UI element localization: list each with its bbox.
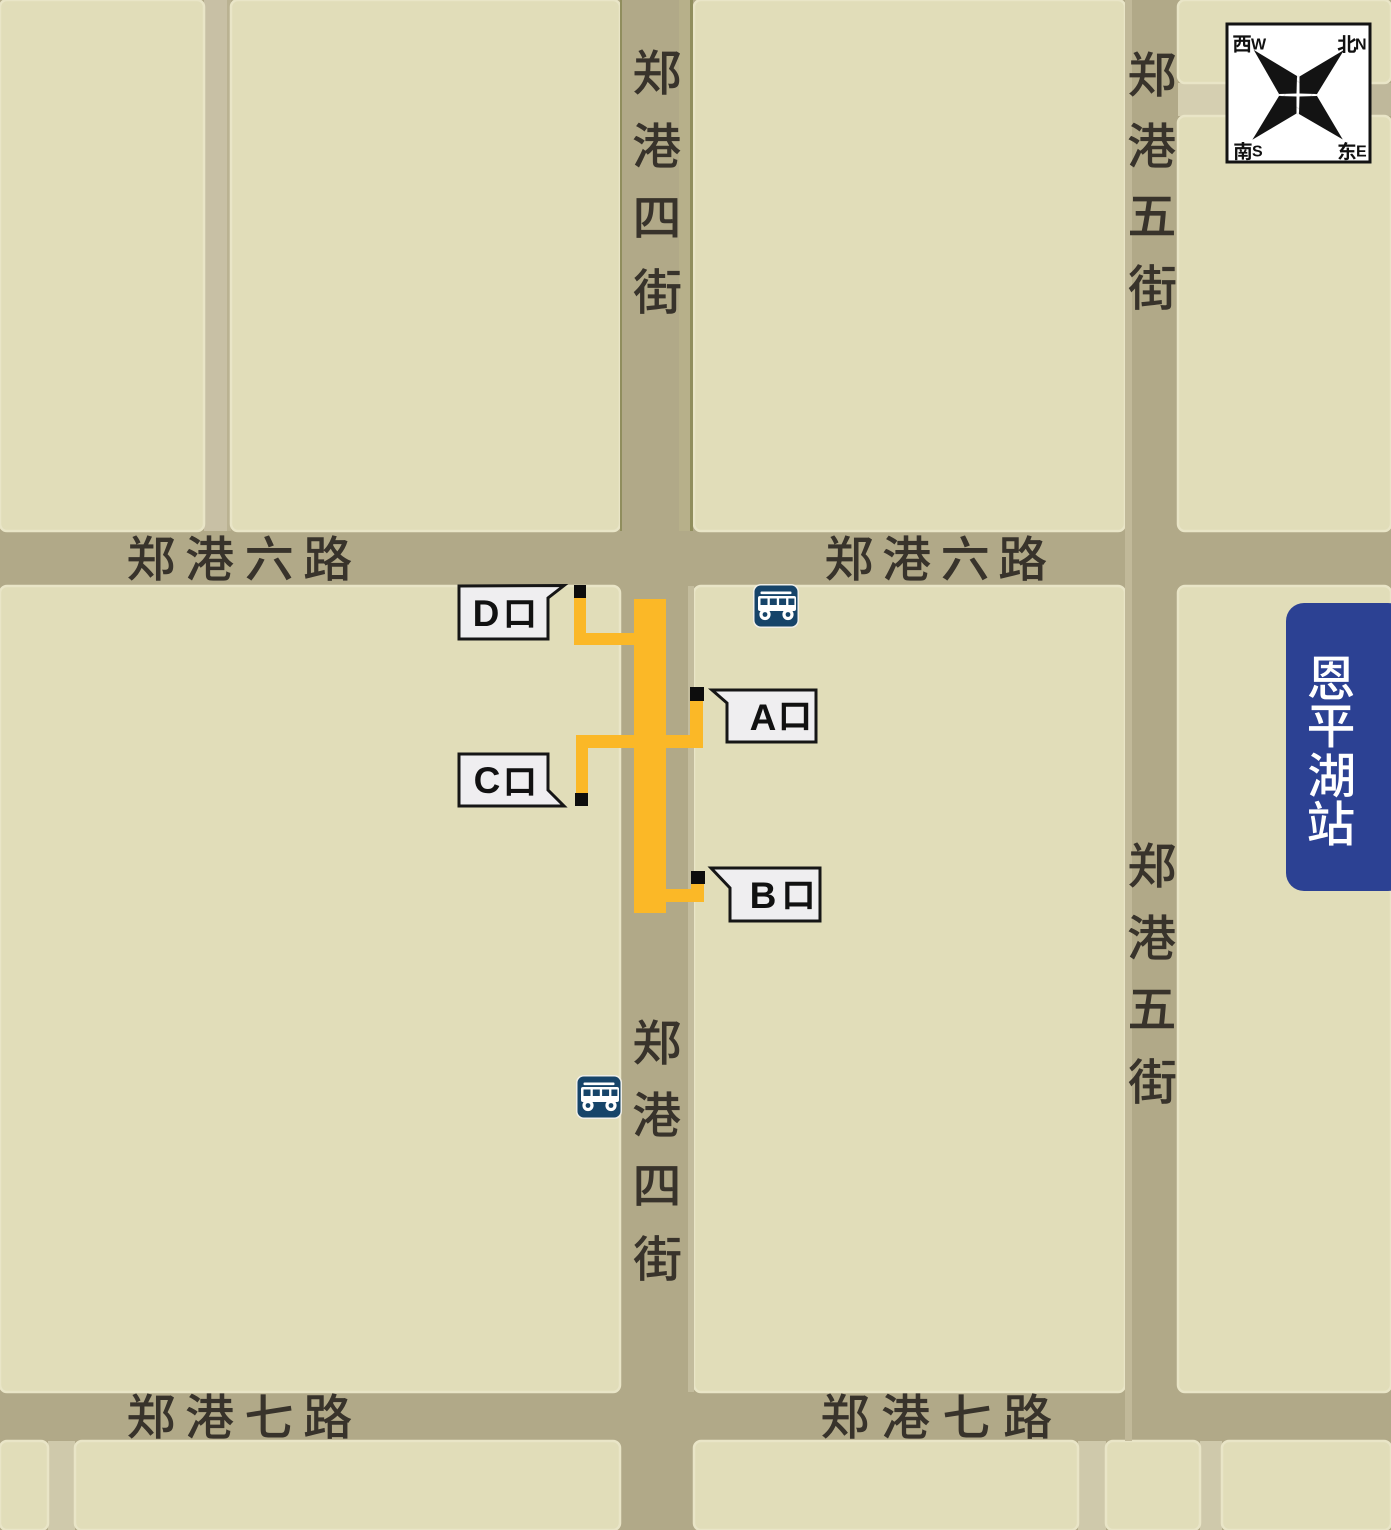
svg-text:C: C: [474, 760, 501, 801]
svg-text:A: A: [750, 697, 777, 738]
svg-text:B: B: [750, 875, 777, 916]
svg-text:D: D: [473, 593, 500, 634]
svg-text:E: E: [1356, 144, 1367, 161]
svg-text:S: S: [1252, 144, 1263, 161]
svg-text:W: W: [1251, 37, 1267, 54]
svg-text:N: N: [1355, 37, 1367, 54]
